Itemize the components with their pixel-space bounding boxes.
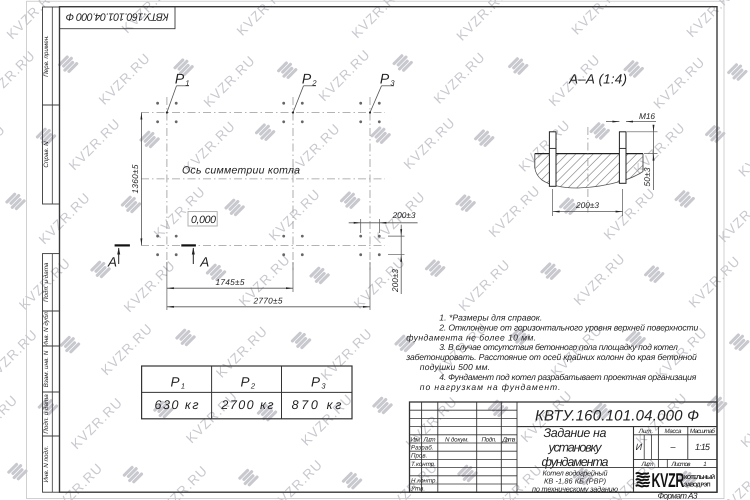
svg-text:Инв. N подл.: Инв. N подл. (43, 446, 50, 483)
svg-text:50±3: 50±3 (642, 167, 652, 186)
svg-text:установку: установку (548, 441, 603, 455)
svg-text:KVZR.RU: KVZR.RU (0, 48, 38, 105)
svg-text:KVZR.RU: KVZR.RU (736, 122, 750, 179)
svg-text:1360±5: 1360±5 (130, 164, 140, 193)
svg-text:Изм.: Изм. (411, 436, 421, 443)
svg-text:Н.контр.: Н.контр. (411, 477, 437, 484)
svg-text:КВТУ.160.101.04.000 Ф: КВТУ.160.101.04.000 Ф (535, 408, 699, 425)
svg-text:3: 3 (390, 79, 395, 88)
svg-text:Справ. N: Справ. N (43, 141, 50, 168)
svg-text:2: 2 (311, 79, 317, 88)
svg-text:0,000: 0,000 (191, 214, 216, 226)
svg-text:KVZR.RU: KVZR.RU (151, 184, 208, 241)
svg-text:KVZR.RU: KVZR.RU (213, 323, 270, 380)
svg-text:Формат А3: Формат А3 (658, 490, 698, 500)
svg-text:P: P (240, 375, 249, 390)
svg-text:KVZR.RU: KVZR.RU (234, 0, 291, 39)
svg-text:2770±5: 2770±5 (253, 296, 283, 306)
svg-text:фундамента не более 10 мм.: фундамента не более 10 мм. (406, 332, 536, 342)
svg-text:Лит.: Лит. (638, 428, 654, 435)
svg-text:P: P (170, 375, 179, 390)
svg-text:KVZR.RU: KVZR.RU (36, 190, 93, 247)
svg-text:4. Фундамент под котел разраб: 4. Фундамент под котел разрабатывает про… (439, 372, 696, 382)
svg-text:3. В случае отсутствия бетонн: 3. В случае отсутствия бетонного пола пл… (439, 342, 678, 352)
svg-text:630 кг: 630 кг (155, 398, 199, 412)
svg-text:KVZR.RU: KVZR.RU (569, 0, 626, 38)
svg-text:Утв.: Утв. (410, 486, 425, 493)
svg-text:KVZR.RU: KVZR.RU (516, 117, 573, 174)
svg-text:И: И (636, 442, 643, 452)
svg-text:2. Отклонение от горизонтальн: 2. Отклонение от горизонтального уровня … (438, 322, 698, 332)
svg-text:200±3: 200±3 (575, 200, 599, 210)
svg-text:Листов: Листов (671, 461, 692, 468)
svg-text:Лист: Лист (641, 461, 654, 468)
svg-text:ЗАВОД РЭП: ЗАВОД РЭП (684, 482, 711, 488)
svg-text:Пров.: Пров. (411, 453, 427, 460)
svg-text:Подп. и дата: Подп. и дата (43, 394, 50, 434)
svg-text:KVZR.RU: KVZR.RU (571, 251, 628, 308)
svg-text:2: 2 (250, 382, 256, 391)
svg-text:KVZR.RU: KVZR.RU (486, 183, 543, 240)
svg-text:200±3: 200±3 (390, 269, 400, 293)
svg-text:KVZR.RU: KVZR.RU (201, 53, 258, 110)
svg-text:KVZR.RU: KVZR.RU (0, 122, 8, 179)
svg-text:KVZR.RU: KVZR.RU (48, 460, 105, 500)
svg-text:P: P (175, 71, 185, 87)
svg-text:P: P (380, 71, 390, 87)
svg-text:–: – (669, 442, 676, 452)
svg-text:1: 1 (185, 79, 189, 88)
svg-text:M16: M16 (639, 111, 655, 121)
svg-text:Перв. примен.: Перв. примен. (43, 35, 50, 77)
svg-text:по техническому заданию: по техническому заданию (532, 484, 619, 493)
svg-text:фундамента: фундамента (542, 455, 609, 469)
svg-text:KVZR.RU: KVZR.RU (98, 321, 155, 378)
svg-text:P: P (311, 375, 320, 390)
svg-text:Лист: Лист (423, 436, 436, 443)
svg-text:KVZR.RU: KVZR.RU (0, 327, 41, 384)
svg-text:KVZR.RU: KVZR.RU (153, 463, 210, 500)
svg-text:A–A (1:4): A–A (1:4) (568, 72, 627, 87)
svg-text:подушки 500 мм.: подушки 500 мм. (420, 362, 490, 372)
svg-text:Масса: Масса (665, 428, 683, 435)
svg-text:Инв. N дубл.: Инв. N дубл. (43, 310, 50, 346)
svg-text:N докум.: N докум. (445, 436, 469, 443)
svg-text:KVZR.RU: KVZR.RU (401, 115, 458, 172)
svg-text:Масштаб: Масштаб (690, 428, 716, 435)
svg-text:3: 3 (321, 382, 326, 391)
svg-text:1. *Размеры для справок.: 1. *Размеры для справок. (439, 312, 542, 322)
svg-text:1: 1 (181, 382, 185, 391)
svg-text:200±3: 200±3 (392, 210, 416, 220)
svg-text:KVZR.RU: KVZR.RU (316, 47, 373, 104)
svg-text:Т.контр.: Т.контр. (411, 461, 436, 468)
svg-text:KVZR.RU: KVZR.RU (96, 50, 153, 107)
svg-text:P: P (302, 71, 312, 87)
svg-text:KVZR.RU: KVZR.RU (716, 188, 750, 245)
svg-text:Разраб.: Разраб. (411, 445, 433, 452)
svg-text:KVZR.RU: KVZR.RU (268, 457, 325, 500)
svg-text:Подп.: Подп. (482, 436, 497, 443)
svg-text:A: A (199, 255, 209, 270)
svg-text:KVZR.RU: KVZR.RU (651, 54, 708, 111)
svg-text:KVZR.RU: KVZR.RU (318, 326, 375, 383)
svg-text:KVZR.RU: KVZR.RU (0, 392, 21, 449)
svg-text:1745±5: 1745±5 (216, 277, 245, 287)
svg-text:Подп. и дата: Подп. и дата (43, 262, 50, 302)
svg-text:1:15: 1:15 (695, 442, 711, 452)
svg-text:КОТЕЛЬНЫЙ: КОТЕЛЬНЫЙ (684, 473, 715, 481)
svg-text:KVZR.RU: KVZR.RU (686, 253, 743, 310)
svg-text:KVZR.RU: KVZR.RU (601, 185, 658, 242)
svg-text:Ось симметрии котла: Ось симметрии котла (182, 164, 300, 176)
svg-text:KVZR.RU: KVZR.RU (431, 49, 488, 106)
svg-text:KVZR.RU: KVZR.RU (718, 458, 750, 500)
svg-text:Задание на: Задание на (544, 426, 607, 440)
svg-text:KVZR.RU: KVZR.RU (738, 393, 750, 450)
svg-text:KVZR.RU: KVZR.RU (266, 186, 323, 243)
svg-text:1: 1 (703, 461, 706, 468)
svg-text:КВТУ.160.101.04.000 Ф: КВТУ.160.101.04.000 Ф (66, 10, 169, 22)
svg-text:KVZR.RU: KVZR.RU (456, 257, 513, 314)
svg-text:KVZR.RU: KVZR.RU (68, 395, 125, 452)
svg-text:по нагрузкам на фундамент.: по нагрузкам на фундамент. (420, 382, 561, 392)
svg-text:Дата: Дата (502, 436, 517, 443)
svg-text:забетонировать. Расстояние от: забетонировать. Расстояние от осей крайн… (405, 352, 697, 362)
svg-text:KVZR: KVZR (652, 470, 685, 492)
svg-text:A: A (107, 255, 117, 270)
svg-text:Взам. инв. N: Взам. инв. N (43, 350, 50, 387)
svg-text:KVZR.RU: KVZR.RU (66, 116, 123, 173)
